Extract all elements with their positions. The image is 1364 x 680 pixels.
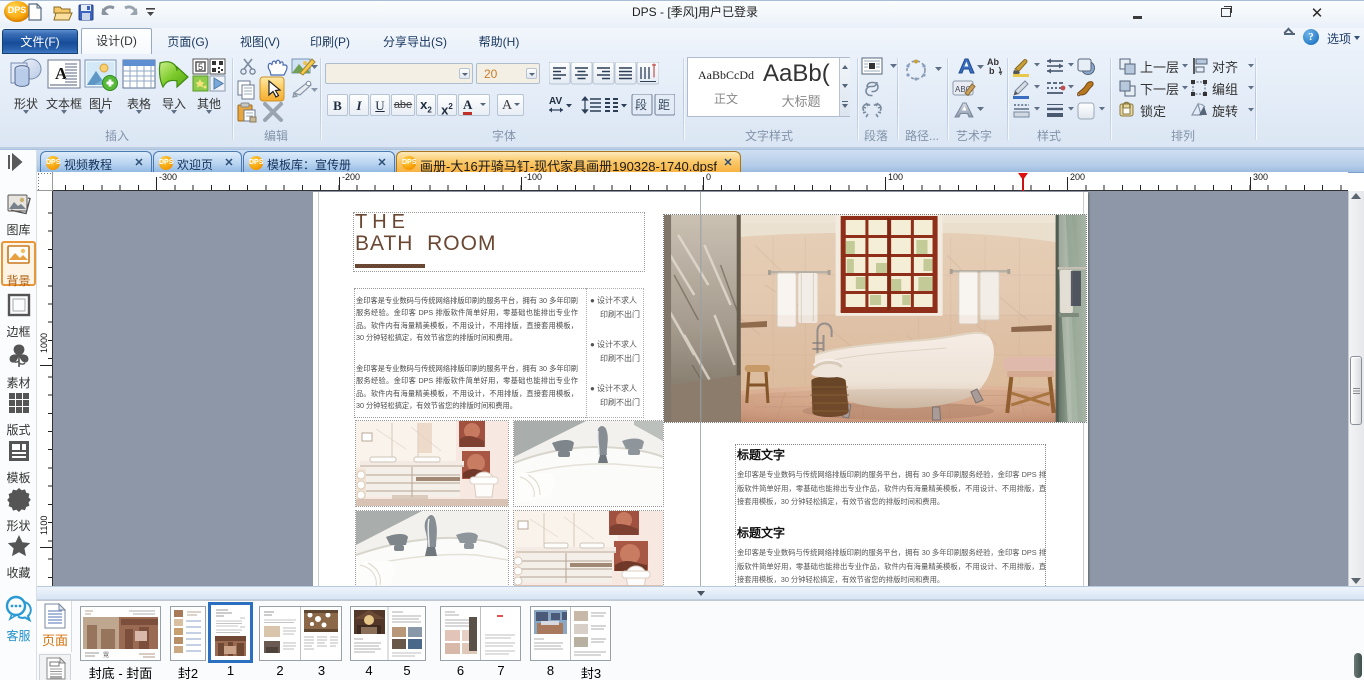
svg-text:5: 5 bbox=[198, 62, 203, 72]
svg-text:编组: 编组 bbox=[1212, 82, 1238, 97]
svg-text:距: 距 bbox=[658, 98, 670, 112]
svg-text:霓: 霓 bbox=[103, 652, 109, 659]
svg-text:段: 段 bbox=[635, 97, 647, 112]
svg-text:下一层: 下一层 bbox=[1140, 82, 1179, 97]
svg-text:对齐: 对齐 bbox=[1212, 60, 1238, 75]
svg-text:旋转: 旋转 bbox=[1212, 104, 1238, 119]
svg-text:b: b bbox=[989, 66, 995, 76]
svg-text:锁定: 锁定 bbox=[1140, 104, 1166, 119]
svg-text:AV: AV bbox=[549, 96, 562, 107]
svg-text:上一层: 上一层 bbox=[1140, 60, 1179, 75]
